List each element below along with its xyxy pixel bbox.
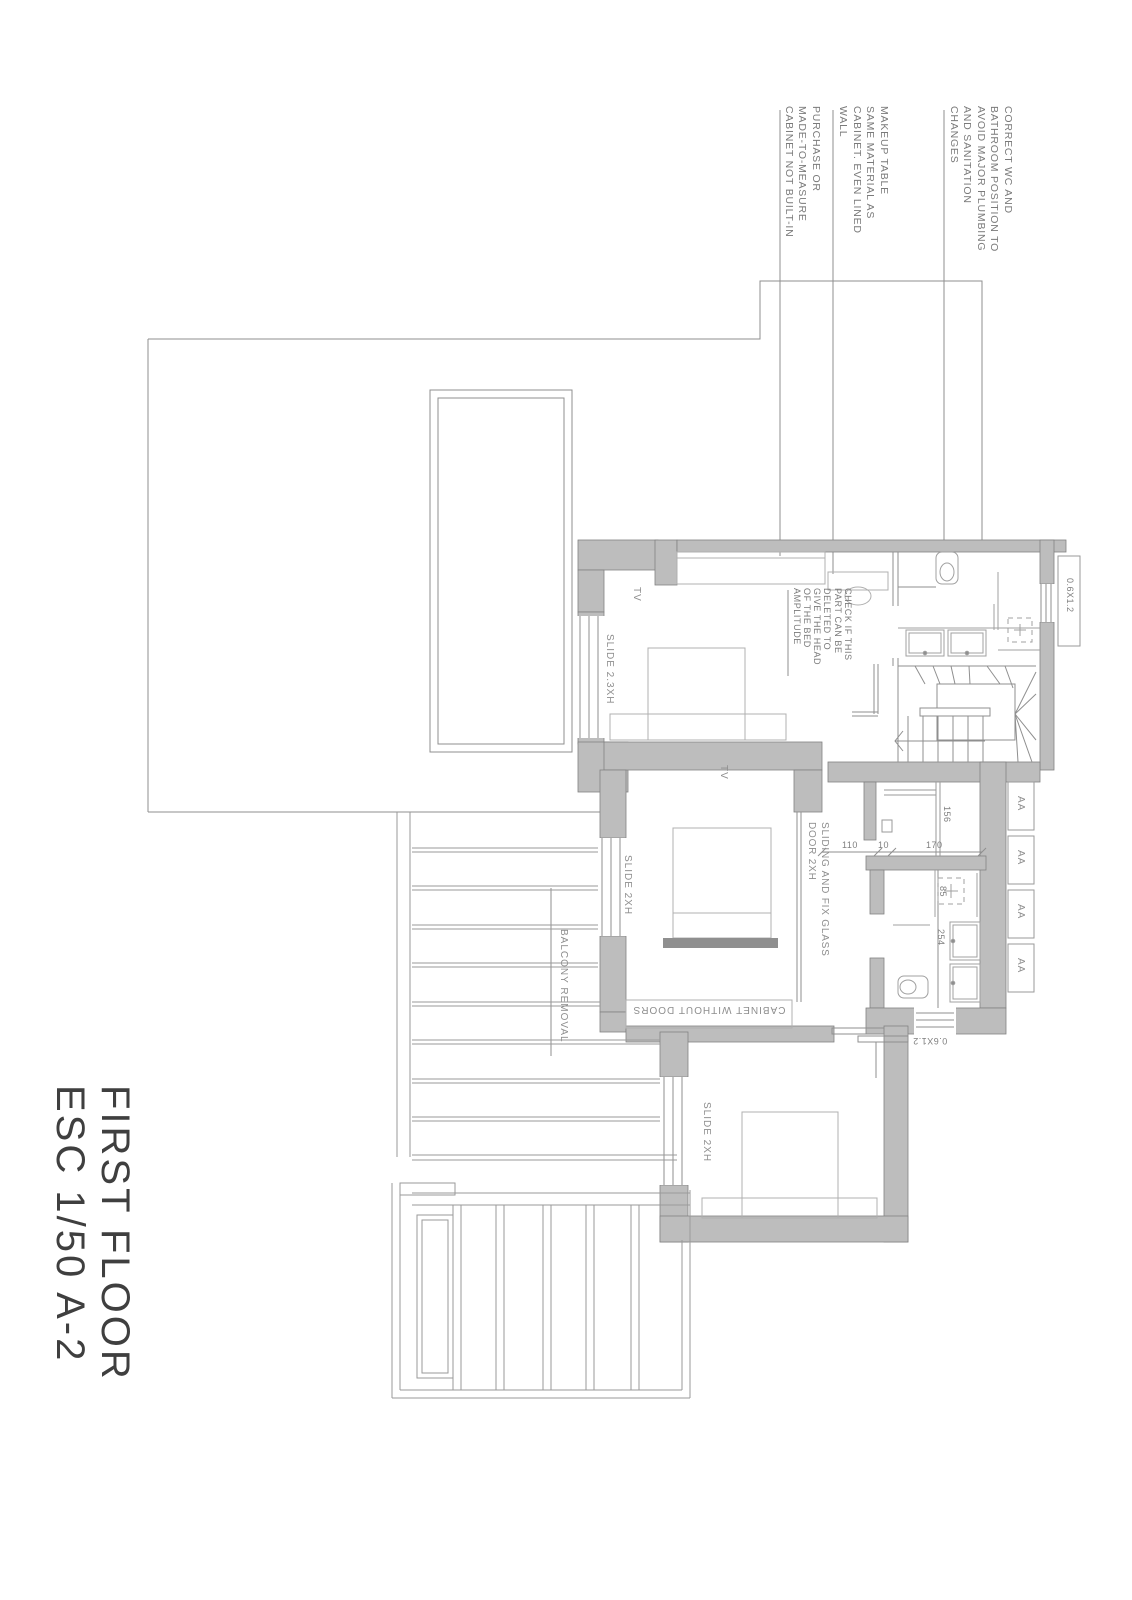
label-tv-bed1: TV [631,587,642,602]
toilet-icon [898,976,928,998]
label-balcony-removal: BALCONY REMOVAL [558,929,569,1043]
label-small-window-bottom: 0.6X1.2 [895,1036,965,1046]
annotation-purchase-cabinet: PURCHASE OR MADE-TO-MEASURE CABINET NOT … [782,106,823,238]
dim-110: 110 [842,840,858,850]
bed2 [673,828,771,938]
bed1 [648,648,745,714]
label-wardrobe-aa: AA [1015,796,1026,811]
title-line: FIRST FLOOR [92,1085,137,1382]
annotation-bed-head-check: CHECK IF THIS PART CAN BE DELETED TO GIV… [791,588,853,665]
label-cabinet-no-doors: CABINET WITHOUT DOORS [626,1004,792,1015]
dim-170: 170 [926,840,943,850]
dimension-lines [818,848,986,1008]
annotation-wc-position: CORRECT WC AND BATHROOM POSITION TO AVOI… [947,106,1015,252]
sheet-title: FIRST FLOOR ESC 1/50 A-2 [47,1085,137,1382]
label-wardrobe-aa: AA [1015,850,1026,865]
bathroom1-fixtures [898,552,1040,656]
dim-156: 156 [942,806,952,823]
terrace [392,1155,690,1398]
label-window-bed2: SLIDE 2XH [622,855,633,915]
toilet-icon [936,552,958,584]
annotation-makeup-table: MAKEUP TABLE SAME MATERIAL AS CABINET. E… [836,106,890,234]
label-tv-bed2: TV [718,765,729,780]
label-wardrobe-aa: AA [1015,958,1026,973]
label-window-bed1: SLIDE 2.3XH [604,634,615,704]
dim-10: 10 [878,840,889,850]
cabinet-bed1 [677,552,825,584]
label-sliding-glass-door: SLIDING AND FIX GLASS DOOR 2XH [805,822,831,957]
dim-85: 85 [938,886,948,897]
drawing-sheet: FIRST FLOOR ESC 1/50 A-2 PURCHASE OR MAD… [0,0,1132,1600]
title-line: ESC 1/50 A-2 [47,1085,92,1382]
dim-254: 254 [936,929,946,946]
label-wardrobe-aa: AA [1015,904,1026,919]
label-window-bed3: SLIDE 2XH [701,1102,712,1162]
label-small-window-top: 0.6X1.2 [1065,578,1075,613]
stairs [895,666,1036,762]
bed3 [742,1112,838,1198]
